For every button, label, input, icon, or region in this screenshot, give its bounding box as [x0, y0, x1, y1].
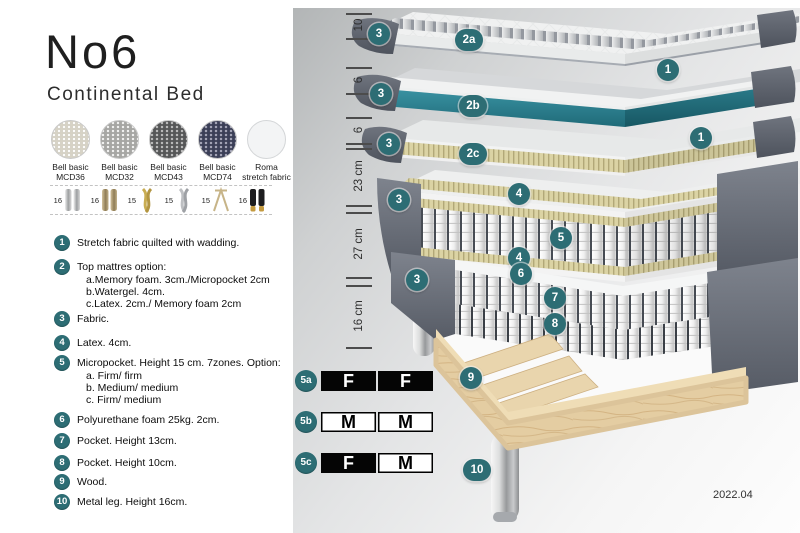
- legend-number-badge: 4: [54, 335, 70, 351]
- fabric-disc-icon: [100, 120, 139, 159]
- twisted-gold-leg-icon: [137, 187, 157, 213]
- box-spring-base: [391, 252, 798, 522]
- firmness-row-5b: 5b M M: [295, 411, 433, 433]
- legend-item: 2 Top mattres option: a.Memory foam. 3cm…: [54, 259, 270, 310]
- fabric-code: MCD36: [52, 172, 88, 182]
- leg-option-twisted-silver[interactable]: 15: [164, 187, 201, 213]
- callout-fabric[interactable]: 3: [378, 133, 400, 155]
- callout-stretch-fabric[interactable]: 1: [690, 127, 712, 149]
- firmness-cell: F: [321, 453, 376, 473]
- firmness-cell: F: [378, 371, 433, 391]
- legend-text: Pocket. Height 10cm.: [77, 455, 177, 470]
- fabric-code: MCD32: [101, 172, 137, 182]
- legend-item: 1 Stretch fabric quilted with wadding.: [54, 235, 239, 251]
- legend-text: Latex. 4cm.: [77, 335, 131, 350]
- ruler-label: 16 cm: [353, 291, 365, 341]
- callout-fabric[interactable]: 3: [406, 269, 428, 291]
- cylinder-black-gold-leg-icon: [248, 187, 268, 213]
- callout-top-option-a[interactable]: 2a: [455, 29, 483, 51]
- product-sheet: No6 Continental Bed Bell basicMCD36 Bell…: [0, 0, 800, 533]
- hairpin-leg-icon: [211, 187, 231, 213]
- layer-top-pad: [352, 10, 800, 66]
- legend-text: Wood.: [77, 474, 107, 489]
- leg-option-twisted-gold[interactable]: 15: [127, 187, 164, 213]
- fabric-name: Bell basic: [150, 162, 186, 172]
- fabric-disc-icon: [51, 120, 90, 159]
- callout-fabric[interactable]: 3: [388, 189, 410, 211]
- fabric-disc-icon: [198, 120, 237, 159]
- ruler-label: 23 cm: [353, 151, 365, 201]
- leg-height: 15: [201, 196, 210, 205]
- fabric-code: stretch fabric: [242, 172, 291, 182]
- revision-date: 2022.04: [713, 489, 753, 501]
- callout-metal-leg[interactable]: 10: [463, 459, 491, 481]
- fabric-swatch[interactable]: Bell basicMCD74: [193, 120, 242, 182]
- ruler-tick: [346, 148, 372, 150]
- legend-number-badge: 10: [54, 494, 70, 510]
- legend-subitem: a. Firm/ firm: [86, 370, 281, 382]
- twisted-silver-leg-icon: [174, 187, 194, 213]
- callout-foam[interactable]: 6: [510, 263, 532, 285]
- page-subtitle: Continental Bed: [47, 84, 205, 106]
- legend-text: Stretch fabric quilted with wadding.: [77, 235, 239, 250]
- legend-text: Fabric.: [77, 311, 109, 326]
- layer-memory-foam: [362, 116, 800, 176]
- ruler-label: 6: [353, 55, 365, 105]
- firmness-badge: 5b: [295, 411, 317, 433]
- legend-subitem: c.Latex. 2cm./ Memory foam 2cm: [86, 298, 270, 310]
- legend-item: 7 Pocket. Height 13cm.: [54, 433, 177, 449]
- legend-item: 10 Metal leg. Height 16cm.: [54, 494, 187, 510]
- legend-subitem: b. Medium/ medium: [86, 382, 281, 394]
- callout-fabric[interactable]: 3: [368, 23, 390, 45]
- ruler-tick: [346, 285, 372, 287]
- fabric-swatch[interactable]: Romastretch fabric: [242, 120, 291, 182]
- legend-item: 3 Fabric.: [54, 311, 109, 327]
- legend-item: 8 Pocket. Height 10cm.: [54, 455, 177, 471]
- legend-number-badge: 1: [54, 235, 70, 251]
- legend-text: Pocket. Height 13cm.: [77, 433, 177, 448]
- legend-subitem: c. Firm/ medium: [86, 394, 281, 406]
- layer-watergel: [354, 66, 800, 127]
- fabric-swatches: Bell basicMCD36 Bell basicMCD32 Bell bas…: [46, 120, 291, 182]
- callout-pocket-13[interactable]: 7: [544, 287, 566, 309]
- ruler-tick: [346, 212, 372, 214]
- legend-subitem: a.Memory foam. 3cm./Micropocket 2cm: [86, 274, 270, 286]
- legend-item: 4 Latex. 4cm.: [54, 335, 131, 351]
- legend-text: Micropocket. Height 15 cm. 7zones. Optio…: [77, 355, 281, 370]
- fabric-swatch[interactable]: Bell basicMCD36: [46, 120, 95, 182]
- bed-diagram-panel: 10 6 6 23 cm 27 cm 16 cm 3 2a 1 3 2b 3 2…: [293, 8, 800, 533]
- ruler-tick: [346, 277, 372, 279]
- fabric-name: Roma: [242, 162, 291, 172]
- legend-number-badge: 3: [54, 311, 70, 327]
- legend-number-badge: 8: [54, 455, 70, 471]
- callout-wood[interactable]: 9: [460, 367, 482, 389]
- callout-top-option-c[interactable]: 2c: [459, 143, 487, 165]
- callout-pocket-10[interactable]: 8: [544, 313, 566, 335]
- leg-option-hairpin[interactable]: 15: [201, 187, 238, 213]
- firmness-cell: M: [378, 412, 433, 432]
- leg-height: 15: [164, 196, 173, 205]
- callout-micropocket[interactable]: 5: [550, 227, 572, 249]
- cylinder-chrome-leg-icon: [63, 187, 83, 213]
- leg-option-chrome-cylinder[interactable]: 16: [53, 187, 90, 213]
- ruler-tick: [346, 205, 372, 207]
- callout-latex[interactable]: 4: [508, 183, 530, 205]
- fabric-swatch[interactable]: Bell basicMCD32: [95, 120, 144, 182]
- legend-item: 6 Polyurethane foam 25kg. 2cm.: [54, 412, 219, 428]
- fabric-name: Bell basic: [199, 162, 235, 172]
- leg-height: 16: [90, 196, 99, 205]
- leg-height: 16: [238, 196, 247, 205]
- legend-number-badge: 2: [54, 259, 70, 275]
- fabric-name: Bell basic: [52, 162, 88, 172]
- firmness-cell: F: [321, 371, 376, 391]
- legend-subitem: b.Watergel. 4cm.: [86, 286, 270, 298]
- fabric-name: Bell basic: [101, 162, 137, 172]
- firmness-row-5a: 5a F F: [295, 370, 433, 392]
- legend-number-badge: 9: [54, 474, 70, 490]
- fabric-code: MCD43: [150, 172, 186, 182]
- leg-option-wood-cylinder[interactable]: 16: [90, 187, 127, 213]
- callout-top-option-b[interactable]: 2b: [459, 95, 487, 117]
- page-title: No6: [45, 24, 140, 79]
- fabric-disc-icon: [149, 120, 188, 159]
- fabric-swatch[interactable]: Bell basicMCD43: [144, 120, 193, 182]
- fabric-code: MCD74: [199, 172, 235, 182]
- firmness-badge: 5c: [295, 452, 317, 474]
- legend-text: Top mattres option:: [77, 259, 270, 274]
- callout-stretch-fabric[interactable]: 1: [657, 59, 679, 81]
- legend-number-badge: 6: [54, 412, 70, 428]
- legend-text: Polyurethane foam 25kg. 2cm.: [77, 412, 219, 427]
- legend-text: Metal leg. Height 16cm.: [77, 494, 187, 509]
- ruler-tick: [346, 347, 372, 349]
- cylinder-wood-leg-icon: [100, 187, 120, 213]
- fabric-disc-icon: [247, 120, 286, 159]
- leg-height: 16: [53, 196, 62, 205]
- legend-item: 5 Micropocket. Height 15 cm. 7zones. Opt…: [54, 355, 281, 406]
- firmness-cell: M: [378, 453, 433, 473]
- callout-fabric[interactable]: 3: [370, 83, 392, 105]
- legend-number-badge: 7: [54, 433, 70, 449]
- firmness-row-5c: 5c F M: [295, 452, 433, 474]
- firmness-cell: M: [321, 412, 376, 432]
- leg-option-black-gold-cylinder[interactable]: 16: [238, 187, 275, 213]
- ruler-label: 10: [353, 0, 365, 50]
- leg-height: 15: [127, 196, 136, 205]
- ruler-label: 27 cm: [353, 219, 365, 269]
- legend-item: 9 Wood.: [54, 474, 107, 490]
- legend-number-badge: 5: [54, 355, 70, 371]
- firmness-badge: 5a: [295, 370, 317, 392]
